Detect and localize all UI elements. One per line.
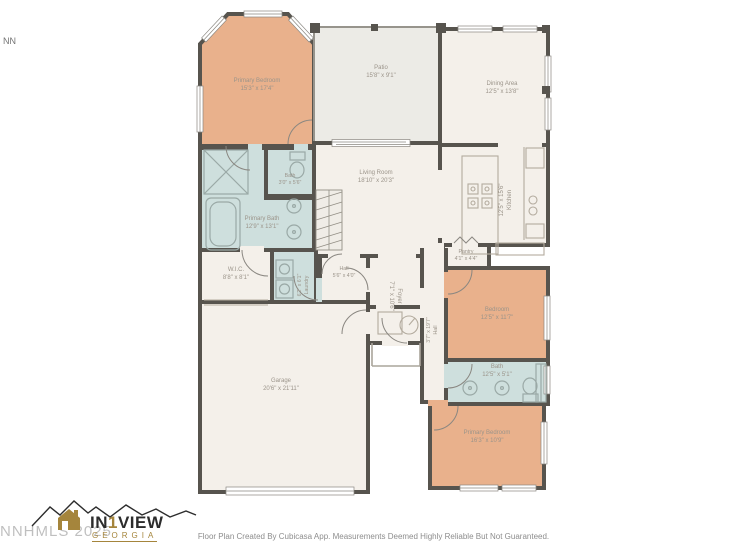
- porch-outline: [372, 343, 420, 366]
- wall-post: [542, 86, 550, 94]
- room-bedroom: [446, 268, 548, 360]
- footer-disclaimer: Floor Plan Created By Cubicasa App. Meas…: [0, 532, 747, 541]
- window: [502, 485, 536, 491]
- dims-living: 18'10" x 20'3": [358, 178, 394, 184]
- label-bath-top: Bath: [285, 173, 296, 179]
- label-patio: Patio: [374, 65, 388, 71]
- opening-foyer-hallright: [420, 288, 426, 318]
- window: [541, 422, 547, 464]
- window: [244, 11, 282, 17]
- stairs-hatch: [316, 190, 342, 250]
- dims-pantry: 4'1" x 4'4": [455, 256, 478, 262]
- room-primary-bedroom-2: [430, 404, 544, 488]
- opening-utility-garage: [366, 312, 372, 334]
- patio-post: [371, 24, 378, 31]
- opening-laundry: [316, 278, 322, 302]
- label-dining: Dining Area: [486, 81, 518, 87]
- label-wic: W.I.C.: [228, 267, 245, 273]
- opening-bedroom-bathtop: [294, 144, 308, 150]
- dims-primary-bedroom-1: 15'3" x 17'4": [241, 86, 274, 92]
- dims-patio: 15'8" x 9'1": [366, 73, 396, 79]
- window: [544, 366, 550, 394]
- dims-bath-bottom: 12'5" x 5'1": [482, 372, 512, 378]
- window: [458, 26, 492, 32]
- label-kitchen: Kitchen: [507, 190, 513, 210]
- opening-hall-foyer: [366, 268, 372, 292]
- window: [545, 98, 551, 130]
- room-dining-area: [440, 29, 548, 145]
- room-foyer: [368, 256, 422, 343]
- wall-post: [542, 25, 550, 33]
- window: [197, 86, 203, 132]
- window: [544, 296, 550, 340]
- dims-bedroom: 12'5" x 11'7": [481, 315, 513, 321]
- dims-garage: 20'6" x 21'11": [263, 386, 299, 392]
- patio-post: [436, 23, 446, 33]
- dims-dining: 12'5" x 13'8": [486, 89, 519, 95]
- opening-bath-wic: [240, 246, 264, 254]
- watermark-corner: NN: [3, 36, 16, 46]
- dims-hall-small: 5'6" x 4'0": [333, 273, 356, 279]
- opening-living-hallright: [424, 254, 442, 260]
- window: [503, 26, 537, 32]
- room-kitchen: [440, 145, 548, 245]
- label-bath-bottom: Bath: [491, 364, 503, 370]
- window: [460, 485, 498, 491]
- label-hall-right: Hall: [433, 326, 439, 335]
- dims-kitchen: 12'5" x 15'6": [499, 184, 505, 217]
- opening-living-kitchen: [436, 170, 444, 238]
- garage-door: [226, 487, 354, 495]
- sliding-glass-door: [332, 140, 410, 147]
- dims-primary-bath: 12'9" x 13'1": [246, 224, 279, 230]
- label-primary-bedroom-2: Primary Bedroom: [464, 430, 511, 436]
- label-foyer: Foyer: [396, 288, 402, 303]
- label-pantry: Pantry: [459, 249, 474, 255]
- label-garage: Garage: [271, 378, 292, 384]
- label-laundry: Laundry: [304, 275, 310, 294]
- opening-kitchen-hall: [424, 243, 444, 252]
- room-hall-small: [320, 256, 368, 302]
- dims-laundry: 6'2" x 6'1": [297, 274, 303, 297]
- opening-living-foyer: [378, 254, 416, 260]
- label-living: Living Room: [359, 170, 392, 176]
- dims-primary-bedroom-2: 16'3" x 10'9": [471, 438, 504, 444]
- room-patio: [314, 27, 440, 143]
- opening-hall-pb2: [428, 400, 448, 406]
- label-primary-bath: Primary Bath: [245, 216, 280, 222]
- floor-plan-drawing: Primary Bedroom 15'3" x 17'4" Patio 15'8…: [0, 0, 747, 560]
- dims-wic: 8'8" x 8'1": [223, 275, 249, 281]
- patio-post: [310, 23, 320, 33]
- floor-plan-page: Primary Bedroom 15'3" x 17'4" Patio 15'8…: [0, 0, 747, 560]
- opening-living-hall: [328, 254, 360, 260]
- label-hall-small: Hall: [340, 266, 349, 272]
- dims-foyer: 7'1" x 10'6": [388, 281, 394, 311]
- dims-bath-top: 3'0" x 5'6": [279, 180, 302, 186]
- logo-wordmark: IN1VIEW: [90, 514, 163, 531]
- opening-hall-bath: [444, 364, 450, 388]
- opening-pantry: [452, 243, 478, 248]
- label-bedroom: Bedroom: [485, 307, 509, 313]
- opening-bedroom-bath: [248, 144, 262, 150]
- label-primary-bedroom-1: Primary Bedroom: [234, 78, 281, 84]
- room-garage: [200, 302, 368, 492]
- dims-hall-right: 3'7" x 19'7": [426, 317, 432, 343]
